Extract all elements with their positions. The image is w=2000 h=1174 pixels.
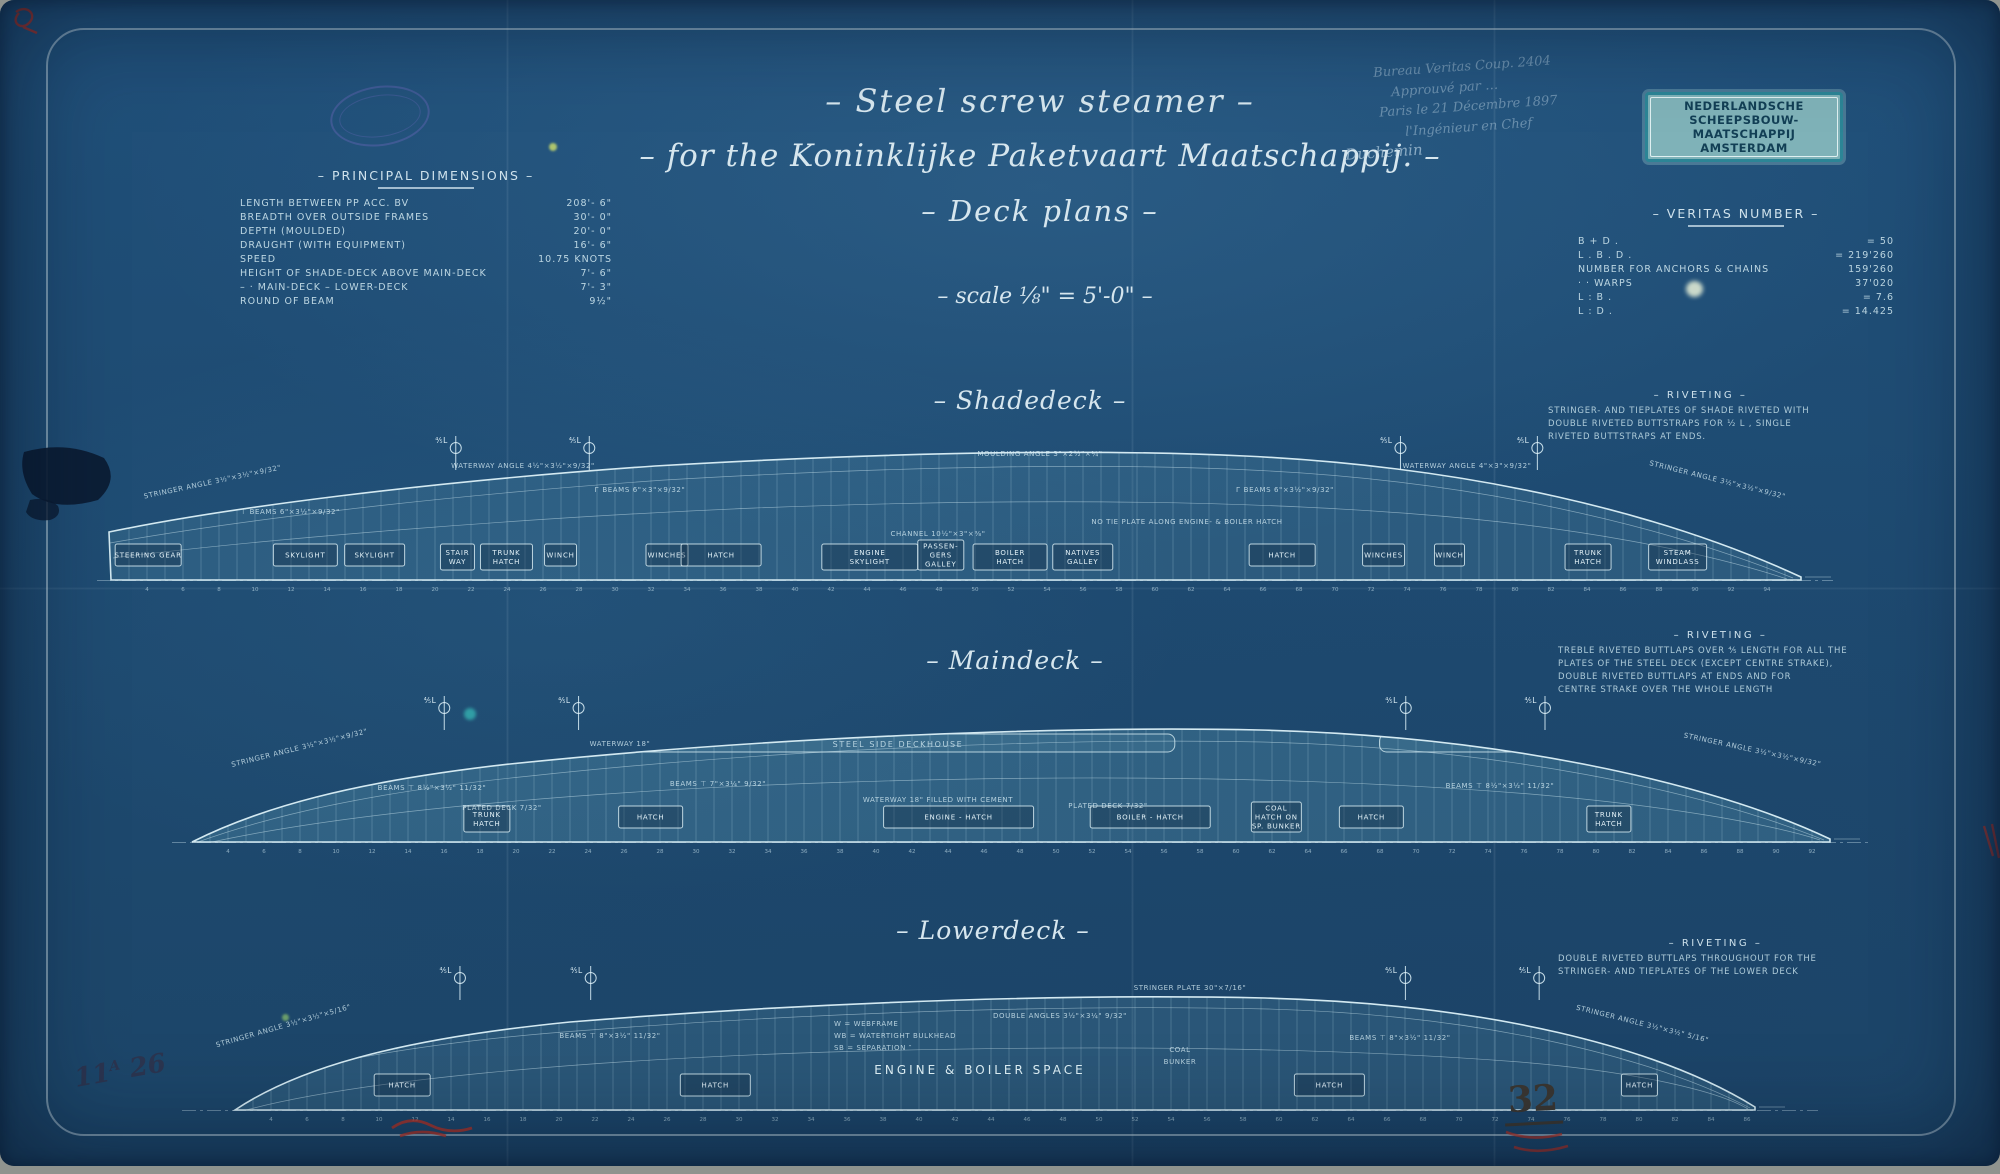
frame-number: 4 <box>226 849 230 855</box>
frame-number: 30 <box>612 587 619 593</box>
frame-number: 6 <box>181 587 185 593</box>
hatch-label: HATCH ON <box>1255 814 1298 822</box>
frame-number: 78 <box>1600 1117 1607 1123</box>
frame-number: 6 <box>305 1117 309 1123</box>
frame-number: 16 <box>484 1117 491 1123</box>
hatch-label: PASSEN- <box>923 543 958 551</box>
hatch-box <box>1587 806 1631 832</box>
table-row: L . B . D .= 219'260 <box>1578 249 1894 263</box>
hatch-box <box>1565 544 1611 570</box>
frame-number: 88 <box>1656 587 1663 593</box>
hatch-label: HATCH <box>702 1082 730 1090</box>
frame-number: 72 <box>1368 587 1375 593</box>
hatch-label: WINCHES <box>1364 552 1403 560</box>
riveting-heading: – RIVETING – <box>1558 938 1873 949</box>
hatch-label: NATIVES <box>1065 549 1100 557</box>
hatch-box <box>1053 544 1113 570</box>
hatch-label: BOILER <box>995 549 1025 557</box>
frame-number: 64 <box>1305 849 1312 855</box>
frame-number: 12 <box>412 1117 419 1123</box>
hatch-box <box>480 544 532 570</box>
mast-label: ⅘L <box>1385 966 1398 975</box>
frame-number: 48 <box>1017 849 1024 855</box>
frame-number: 26 <box>540 587 547 593</box>
red-pencil-mark-rightedge <box>1984 824 1999 858</box>
frame-number: 84 <box>1584 587 1591 593</box>
hatch-label: COAL <box>1265 805 1287 813</box>
frame-number: 28 <box>700 1117 707 1123</box>
structural-annotation: MOULDING ANGLE 3"×2½"×¼" <box>977 450 1102 458</box>
mast-label: ⅘L <box>1385 696 1398 705</box>
structural-annotation: CHANNEL 10½"×3"×⅜" <box>890 530 985 538</box>
hatch-box <box>440 544 474 570</box>
riveting-line: DOUBLE RIVETED BUTTLAPS AT ENDS AND FOR <box>1558 671 1883 684</box>
structural-annotation: BEAMS ⊤ 8½"×3½" 11/32" <box>1446 782 1555 790</box>
structural-annotation: STRINGER ANGLE 3½"×3½"×9/32" <box>1683 732 1822 769</box>
frame-number: 32 <box>729 849 736 855</box>
frame-number: 30 <box>736 1117 743 1123</box>
frame-number: 72 <box>1492 1117 1499 1123</box>
structural-annotation: STRINGER ANGLE 3½"×3½"×9/32" <box>1648 459 1786 501</box>
frame-number: 50 <box>1096 1117 1103 1123</box>
frame-number: 58 <box>1116 587 1123 593</box>
hatch-label: HATCH <box>388 1082 416 1090</box>
frame-number: 74 <box>1485 849 1492 855</box>
structural-annotation: SB = SEPARATION ″ <box>834 1044 912 1052</box>
structural-annotation: WATERWAY ANGLE 4½"×3½"×9/32" <box>451 462 595 470</box>
frame-number: 20 <box>556 1117 563 1123</box>
table-row: L : B .= 7.6 <box>1578 291 1894 305</box>
hatch-label: HATCH <box>1268 552 1296 560</box>
frame-number: 90 <box>1773 849 1780 855</box>
veritas-heading: – VERITAS NUMBER – <box>1578 206 1894 225</box>
table-row: BREADTH OVER OUTSIDE FRAMES30'- 0" <box>240 211 612 225</box>
frame-number: 34 <box>808 1117 815 1123</box>
riveting-heading: – RIVETING – <box>1548 390 1853 401</box>
frame-number: 66 <box>1384 1117 1391 1123</box>
frame-number: 14 <box>324 587 331 593</box>
table-row: HEIGHT OF SHADE-DECK ABOVE MAIN-DECK7'- … <box>240 267 612 281</box>
structural-annotation: COAL <box>1169 1046 1190 1054</box>
frame-number: 78 <box>1476 587 1483 593</box>
structural-annotation: WATERWAY ANGLE 4"×3"×9/32" <box>1403 462 1532 470</box>
frame-number: 40 <box>916 1117 923 1123</box>
mast-label: ⅘L <box>1517 436 1530 445</box>
structural-annotation: BEAMS ⊤ 7"×3¼" 9/32" <box>670 780 766 788</box>
structural-annotation: STRINGER ANGLE 3½"×3½"×9/32" <box>231 727 369 769</box>
table-row: NUMBER FOR ANCHORS & CHAINS159'260 <box>1578 263 1894 277</box>
structural-annotation: DOUBLE ANGLES 3½"×3¼" 9/32" <box>993 1012 1127 1020</box>
inventory-sup: A <box>108 1057 121 1075</box>
hatch-label: HATCH <box>473 820 501 828</box>
frame-number: 22 <box>468 587 475 593</box>
hatch-label: ENGINE <box>854 549 886 557</box>
frame-number: 60 <box>1152 587 1159 593</box>
mast-label: ⅘L <box>1380 436 1393 445</box>
frame-number: 86 <box>1620 587 1627 593</box>
inventory-number: 11 <box>72 1058 113 1094</box>
deckhouse-outline <box>1380 734 1699 752</box>
frame-number: 38 <box>880 1117 887 1123</box>
hatch-label: HATCH <box>637 814 665 822</box>
red-pencil-mark-topleft <box>16 9 37 33</box>
riveting-line: PLATES OF THE STEEL DECK (EXCEPT CENTRE … <box>1558 658 1883 671</box>
structural-annotation: WB = WATERTIGHT BULKHEAD <box>834 1032 956 1040</box>
frame-number: 10 <box>376 1117 383 1123</box>
frame-number: 68 <box>1420 1117 1427 1123</box>
frame-number: 84 <box>1665 849 1672 855</box>
scale-note: – scale ⅛" = 5'-0" – <box>880 284 1210 309</box>
blueprint-sheet: – Steel screw steamer – – for the Konink… <box>0 0 2000 1174</box>
frame-number: 44 <box>988 1117 995 1123</box>
hatch-label: GALLEY <box>925 561 957 569</box>
frame-number: 56 <box>1161 849 1168 855</box>
lowerdeck-title: – Lowerdeck – <box>878 916 1108 945</box>
frame-number: 50 <box>1053 849 1060 855</box>
hatch-label: SKYLIGHT <box>285 552 325 560</box>
frame-number: 20 <box>432 587 439 593</box>
table-row: – · MAIN-DECK – LOWER-DECK7'- 3" <box>240 281 612 295</box>
frame-number: 76 <box>1521 849 1528 855</box>
frame-number: 18 <box>520 1117 527 1123</box>
frame-number: 34 <box>684 587 691 593</box>
frame-number: 80 <box>1512 587 1519 593</box>
frame-number: 12 <box>288 587 295 593</box>
cyanotype-paper: – Steel screw steamer – – for the Konink… <box>0 0 2000 1166</box>
deckhouse-label: STEEL SIDE DECKHOUSE <box>1474 740 1605 749</box>
riveting-line: STRINGER- AND TIEPLATES OF SHADE RIVETED… <box>1548 405 1853 418</box>
frame-number: 94 <box>1764 587 1771 593</box>
hatch-label: WINCH <box>546 552 574 560</box>
frame-number: 88 <box>1737 849 1744 855</box>
structural-annotation: NO TIE PLATE ALONG ENGINE- & BOILER HATC… <box>1091 518 1282 526</box>
frame-number: 14 <box>405 849 412 855</box>
frame-number: 56 <box>1080 587 1087 593</box>
frame-number: 72 <box>1449 849 1456 855</box>
frame-number: 10 <box>252 587 259 593</box>
structural-annotation: ⊤ BEAMS 6"×3½"×9/32" <box>240 508 340 516</box>
builder-stamp-line2: SCHEEPSBOUW-MAATSCHAPPIJ <box>1648 113 1840 141</box>
frame-number: 92 <box>1728 587 1735 593</box>
frame-number: 8 <box>217 587 221 593</box>
frame-number: 4 <box>145 587 149 593</box>
hatch-label: SP. BUNKER <box>1252 823 1301 831</box>
frame-number: 52 <box>1008 587 1015 593</box>
frame-number: 76 <box>1564 1117 1571 1123</box>
frame-number: 44 <box>945 849 952 855</box>
frame-number: 36 <box>844 1117 851 1123</box>
sheet-subtitle: – for the Koninklijke Paketvaart Maatsch… <box>620 138 1460 174</box>
principal-dimensions-heading: – PRINCIPAL DIMENSIONS – <box>240 168 612 187</box>
table-row: · · WARPS37'020 <box>1578 277 1894 291</box>
veritas-rows: B + D .= 50L . B . D .= 219'260NUMBER FO… <box>1578 235 1894 319</box>
frame-number: 54 <box>1044 587 1051 593</box>
frame-number: 62 <box>1269 849 1276 855</box>
structural-annotation: BEAMS ⊤ 8"×3½" 11/32" <box>1349 1034 1450 1042</box>
frame-number: 70 <box>1332 587 1339 593</box>
frame-number: 86 <box>1701 849 1708 855</box>
structural-annotation: STRINGER ANGLE 3½"×3½"×9/32" <box>143 464 282 501</box>
sheet-number: 32 <box>1503 1077 1563 1127</box>
frame-number: 38 <box>756 587 763 593</box>
table-row: DEPTH (MOULDED)20'- 0" <box>240 225 612 239</box>
mast-label: ⅘L <box>1525 696 1538 705</box>
frame-number: 48 <box>1060 1117 1067 1123</box>
frame-number: 46 <box>981 849 988 855</box>
lowerdeck-plan-drawing: 4681012141618202224262830323436384042444… <box>180 960 1820 1138</box>
frame-number: 26 <box>664 1117 671 1123</box>
structural-annotation: STRINGER ANGLE 3½"×3½"×5/16" <box>215 1003 352 1049</box>
frame-number: 24 <box>628 1117 635 1123</box>
heading-underline <box>378 187 474 189</box>
builder-stamp-line1: NEDERLANDSCHE <box>1648 99 1840 113</box>
frame-number: 90 <box>1692 587 1699 593</box>
principal-dimensions-rows: LENGTH BETWEEN PP ACC. BV208'- 6"BREADTH… <box>240 197 612 309</box>
hatch-label: HATCH <box>1595 820 1623 828</box>
frame-number: 70 <box>1413 849 1420 855</box>
hatch-label: WAY <box>449 558 466 566</box>
hatch-label: SKYLIGHT <box>850 558 890 566</box>
inventory-suffix: 26 <box>127 1048 168 1084</box>
frame-number: 78 <box>1557 849 1564 855</box>
table-row: SPEED10.75 KNOTS <box>240 253 612 267</box>
frame-number: 28 <box>576 587 583 593</box>
frame-number: 68 <box>1296 587 1303 593</box>
builder-stamp: NEDERLANDSCHE SCHEEPSBOUW-MAATSCHAPPIJ A… <box>1645 92 1843 162</box>
frame-number: 40 <box>792 587 799 593</box>
hatch-label: HATCH <box>1626 1082 1654 1090</box>
frame-number: 80 <box>1593 849 1600 855</box>
frame-number: 38 <box>837 849 844 855</box>
frame-number: 80 <box>1636 1117 1643 1123</box>
structural-annotation: STRINGER ANGLE 3½"×3½" 5/16" <box>1575 1004 1709 1045</box>
table-row: LENGTH BETWEEN PP ACC. BV208'- 6" <box>240 197 612 211</box>
frame-number: 52 <box>1089 849 1096 855</box>
frame-number: 36 <box>801 849 808 855</box>
frame-number: 62 <box>1188 587 1195 593</box>
table-row: ROUND OF BEAM9½" <box>240 295 612 309</box>
mast-label: ⅘L <box>424 696 437 705</box>
mast-label: ⅘L <box>440 966 453 975</box>
frame-number: 64 <box>1348 1117 1355 1123</box>
structural-annotation: PLATED DECK 7/32" <box>1068 802 1148 810</box>
frame-number: 82 <box>1672 1117 1679 1123</box>
frame-number: 54 <box>1168 1117 1175 1123</box>
frame-number: 6 <box>262 849 266 855</box>
title-block: – Steel screw steamer – – for the Konink… <box>620 82 1460 228</box>
frame-number: 70 <box>1456 1117 1463 1123</box>
sheet-plan-type: – Deck plans – <box>620 194 1460 228</box>
table-row: L : D .= 14.425 <box>1578 305 1894 319</box>
mast-label: ⅘L <box>558 696 571 705</box>
frame-number: 64 <box>1224 587 1231 593</box>
hatch-label: WINCH <box>1435 552 1463 560</box>
hatch-label: TRUNK <box>472 811 501 819</box>
hatch-label: TRUNK <box>1594 811 1623 819</box>
frame-number: 40 <box>873 849 880 855</box>
frame-number: 58 <box>1197 849 1204 855</box>
frame-number: 28 <box>657 849 664 855</box>
frame-number: 22 <box>592 1117 599 1123</box>
structural-annotation: W = WEBFRAME <box>834 1020 898 1028</box>
frame-number: 12 <box>369 849 376 855</box>
hatch-label: HATCH <box>1316 1082 1344 1090</box>
frame-number: 24 <box>585 849 592 855</box>
frame-number: 84 <box>1708 1117 1715 1123</box>
frame-number: 44 <box>864 587 871 593</box>
structural-annotation: STRINGER PLATE 30"×7/16" <box>1134 984 1247 992</box>
riveting-note-maindeck: – RIVETING – TREBLE RIVETED BUTTLAPS OVE… <box>1558 630 1883 697</box>
hatch-box <box>822 544 918 570</box>
frame-number: 18 <box>396 587 403 593</box>
mast-label: ⅘L <box>570 966 583 975</box>
frame-number: 8 <box>341 1117 345 1123</box>
hatch-label: STEERING GEAR <box>115 552 182 560</box>
principal-dimensions-table: – PRINCIPAL DIMENSIONS – LENGTH BETWEEN … <box>240 168 612 309</box>
riveting-line: TREBLE RIVETED BUTTLAPS OVER ⅘ LENGTH FO… <box>1558 645 1883 658</box>
frame-number: 76 <box>1440 587 1447 593</box>
hatch-label: HATCH <box>707 552 735 560</box>
frame-number: 32 <box>772 1117 779 1123</box>
hatch-label: GERS <box>930 552 952 560</box>
frame-number: 68 <box>1377 849 1384 855</box>
structural-annotation: BEAMS ⊤ 8"×3½" 11/32" <box>559 1032 660 1040</box>
frame-number: 36 <box>720 587 727 593</box>
table-row: DRAUGHT (WITH EQUIPMENT)16'- 6" <box>240 239 612 253</box>
hatch-label: HATCH <box>1358 814 1386 822</box>
structural-annotation: Г BEAMS 6"×3"×9/32" <box>595 486 686 494</box>
builder-stamp-line3: AMSTERDAM <box>1648 141 1840 155</box>
frame-number: 16 <box>360 587 367 593</box>
sheet-title: – Steel screw steamer – <box>620 82 1460 120</box>
heading-underline <box>1688 225 1784 227</box>
hatch-label: ENGINE - HATCH <box>924 814 993 822</box>
handwritten-approval-notes: Bureau Veritas Coup. 2404Approuvé par …P… <box>1345 54 1655 154</box>
structural-annotation: ENGINE & BOILER SPACE <box>874 1063 1085 1077</box>
frame-number: 86 <box>1744 1117 1751 1123</box>
structural-annotation: WATERWAY 18" <box>590 740 651 748</box>
shadedeck-plan-drawing: 4681012141618202224262830323436384042444… <box>95 430 1835 608</box>
hatch-label: TRUNK <box>491 549 520 557</box>
frame-number: 48 <box>936 587 943 593</box>
maindeck-plan-drawing: STEEL SIDE DECKHOUSESTEEL SIDE DECKHOUSE… <box>170 690 1870 868</box>
frame-number: 10 <box>333 849 340 855</box>
frame-number: 82 <box>1629 849 1636 855</box>
hatch-label: TRUNK <box>1573 549 1602 557</box>
frame-number: 20 <box>513 849 520 855</box>
structural-annotation: PLATED DECK 7/32" <box>462 804 542 812</box>
frame-number: 18 <box>477 849 484 855</box>
frame-number: 8 <box>298 849 302 855</box>
structural-annotation: BEAMS ⊤ 8½"×3½" 11/32" <box>378 784 487 792</box>
frame-number: 50 <box>972 587 979 593</box>
maindeck-title: – Maindeck – <box>905 646 1125 675</box>
frame-number: 34 <box>765 849 772 855</box>
frame-number: 74 <box>1404 587 1411 593</box>
frame-number: 46 <box>900 587 907 593</box>
frame-number: 60 <box>1233 849 1240 855</box>
hatch-label: STAIR <box>445 549 469 557</box>
frame-number: 66 <box>1260 587 1267 593</box>
frame-number: 66 <box>1341 849 1348 855</box>
hatch-label: GALLEY <box>1067 558 1099 566</box>
frame-number: 30 <box>693 849 700 855</box>
frame-number: 62 <box>1312 1117 1319 1123</box>
frame-number: 32 <box>648 587 655 593</box>
frame-number: 56 <box>1204 1117 1211 1123</box>
frame-number: 26 <box>621 849 628 855</box>
hatch-label: HATCH <box>996 558 1024 566</box>
frame-number: 14 <box>448 1117 455 1123</box>
frame-number: 54 <box>1125 849 1132 855</box>
hatch-box <box>973 544 1047 570</box>
riveting-heading: – RIVETING – <box>1558 630 1883 641</box>
hatch-label: HATCH <box>1574 558 1602 566</box>
frame-number: 42 <box>952 1117 959 1123</box>
frame-number: 58 <box>1240 1117 1247 1123</box>
hatch-label: SKYLIGHT <box>354 552 394 560</box>
deckhouse-label: STEEL SIDE DECKHOUSE <box>833 740 964 749</box>
frame-number: 4 <box>269 1117 273 1123</box>
mast-label: ⅘L <box>1519 966 1532 975</box>
frame-number: 16 <box>441 849 448 855</box>
hatch-label: HATCH <box>493 558 521 566</box>
frame-number: 60 <box>1276 1117 1283 1123</box>
frame-number: 92 <box>1809 849 1816 855</box>
mast-label: ⅘L <box>569 436 582 445</box>
table-row: B + D .= 50 <box>1578 235 1894 249</box>
frame-number: 42 <box>828 587 835 593</box>
frame-number: 24 <box>504 587 511 593</box>
structural-annotation: WATERWAY 18" FILLED WITH CEMENT <box>863 796 1013 804</box>
mast-label: ⅘L <box>435 436 448 445</box>
frame-number: 46 <box>1024 1117 1031 1123</box>
frame-number: 82 <box>1548 587 1555 593</box>
frame-number: 42 <box>909 849 916 855</box>
structural-annotation: BUNKER <box>1164 1058 1197 1066</box>
frame-number: 22 <box>549 849 556 855</box>
structural-annotation: Г BEAMS 6"×3½"×9/32" <box>1236 486 1334 494</box>
hatch-box <box>1649 544 1707 570</box>
hatch-label: BOILER - HATCH <box>1117 814 1184 822</box>
hatch-label: WINDLASS <box>1656 558 1700 566</box>
hatch-label: STEAM <box>1664 549 1692 557</box>
veritas-number-table: – VERITAS NUMBER – B + D .= 50L . B . D … <box>1578 206 1894 319</box>
shadedeck-title: – Shadedeck – <box>920 386 1140 415</box>
frame-number: 52 <box>1132 1117 1139 1123</box>
